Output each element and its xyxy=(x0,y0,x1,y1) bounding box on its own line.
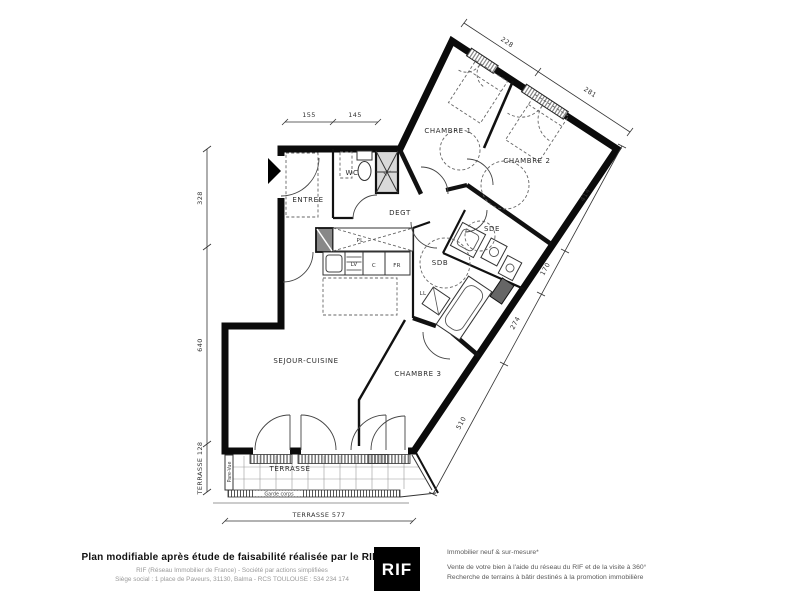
label-fridge: FR xyxy=(393,263,401,269)
label-pare-vue: Pare-Vue xyxy=(227,462,233,483)
terrace-diagonal-inner xyxy=(412,455,432,490)
room-label-sde: SDE xyxy=(484,225,500,233)
room-label-terrasse: TERRASSE xyxy=(268,465,310,473)
label-lv: LV xyxy=(351,262,358,268)
room-label-sdb: SDB xyxy=(432,259,448,267)
room-label-chambre1: CHAMBRE 1 xyxy=(424,127,471,135)
footer-right-line2: Vente de votre bien à l'aide du réseau d… xyxy=(447,563,647,571)
room-label-entree: ENTREE xyxy=(292,196,323,204)
dim-155: 155 xyxy=(302,111,316,119)
dim-terrasse-577: TERRASSE 577 xyxy=(292,511,346,519)
dim-left-terrasse-128: TERRASSE 128 xyxy=(196,442,204,496)
kitchen-sink xyxy=(326,255,342,272)
floor-plan-drawing: CHAMBRE 1 CHAMBRE 2 CHAMBRE 3 SEJOUR-CUI… xyxy=(0,0,800,600)
footer-address-line: Siège social : 1 place de Paveurs, 31130… xyxy=(115,576,349,583)
room-label-degt: DEGT xyxy=(389,209,411,217)
footer-title: Plan modifiable après étude de faisabili… xyxy=(82,552,379,563)
footer-company-line: RIF (Réseau Immobilier de France) - Soci… xyxy=(136,567,328,574)
footer-right-line3: Recherche de terrains à bâtir destinés à… xyxy=(447,574,644,581)
room-label-chambre2: CHAMBRE 2 xyxy=(503,157,550,165)
room-label-sejour: SEJOUR-CUISINE xyxy=(273,357,338,365)
label-pl-kitchen: PL xyxy=(357,238,365,244)
floor-plan-page: CHAMBRE 1 CHAMBRE 2 CHAMBRE 3 SEJOUR-CUI… xyxy=(0,0,800,600)
dim-left-640: 640 xyxy=(196,338,204,352)
dim-274: 274 xyxy=(508,315,522,331)
entrance-opening xyxy=(276,156,286,198)
dim-281: 281 xyxy=(582,85,598,99)
label-garde-corps: Garde corps xyxy=(264,492,294,498)
dim-510: 510 xyxy=(454,415,468,431)
dim-left-328: 328 xyxy=(196,191,204,205)
footer: Plan modifiable après étude de faisabili… xyxy=(82,547,647,591)
toilet-tank xyxy=(357,151,372,160)
terrace-diagonal-outer xyxy=(415,451,438,493)
rif-logo-text: RIF xyxy=(382,560,412,579)
room-label-wc: WC xyxy=(345,169,358,177)
label-ll: LL xyxy=(420,291,427,297)
label-cooker: C xyxy=(372,263,376,269)
footer-right-line1: Immobilier neuf & sur-mesure* xyxy=(447,549,539,556)
dim-145: 145 xyxy=(348,111,362,119)
room-label-chambre3: CHAMBRE 3 xyxy=(394,370,441,378)
toilet-bowl xyxy=(358,162,371,181)
exterior-walls xyxy=(225,41,617,451)
